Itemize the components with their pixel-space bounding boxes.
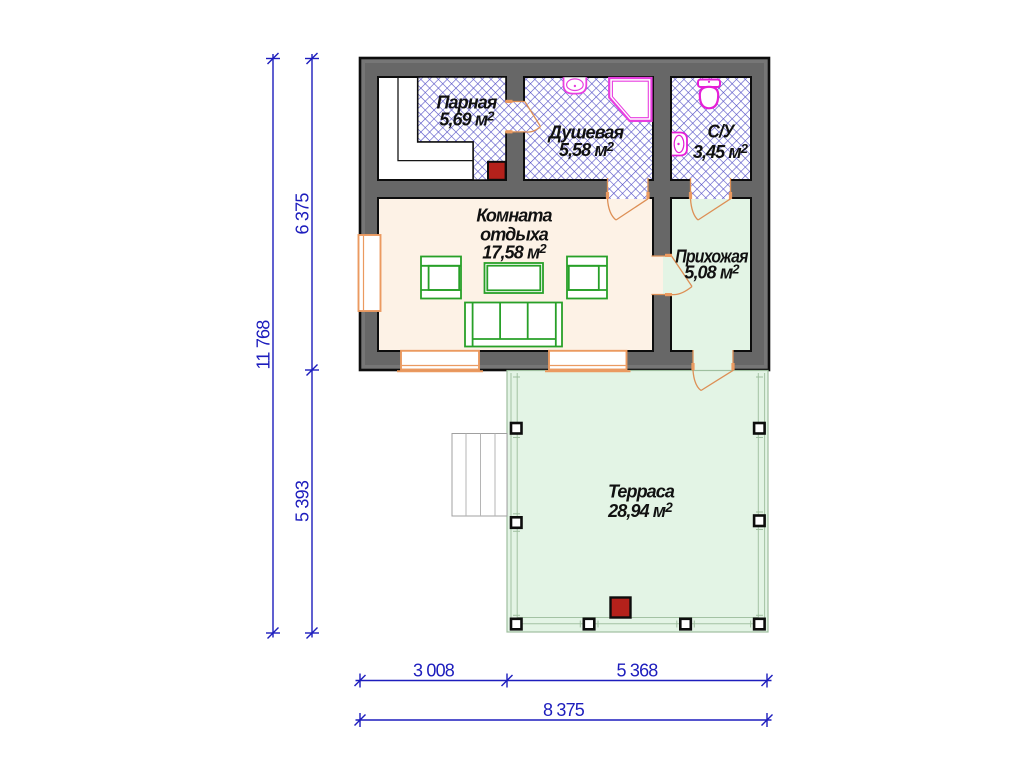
svg-text:3 008: 3 008 [413,661,455,681]
svg-text:5,69 м2: 5,69 м2 [439,109,495,130]
svg-text:11 768: 11 768 [254,320,274,370]
svg-text:Комната: Комната [476,205,552,225]
svg-text:28,94 м2: 28,94 м2 [607,500,673,521]
svg-text:5 393: 5 393 [293,480,313,522]
svg-text:5,08 м2: 5,08 м2 [684,262,740,283]
svg-text:5,58 м2: 5,58 м2 [559,139,615,160]
svg-text:Терраса: Терраса [608,482,675,502]
svg-text:С/У: С/У [708,122,737,142]
svg-text:17,58 м2: 17,58 м2 [482,241,547,263]
svg-text:5 368: 5 368 [616,661,658,681]
svg-text:8 375: 8 375 [543,700,585,720]
svg-text:3,45 м2: 3,45 м2 [693,141,749,162]
svg-text:6 375: 6 375 [293,193,313,235]
